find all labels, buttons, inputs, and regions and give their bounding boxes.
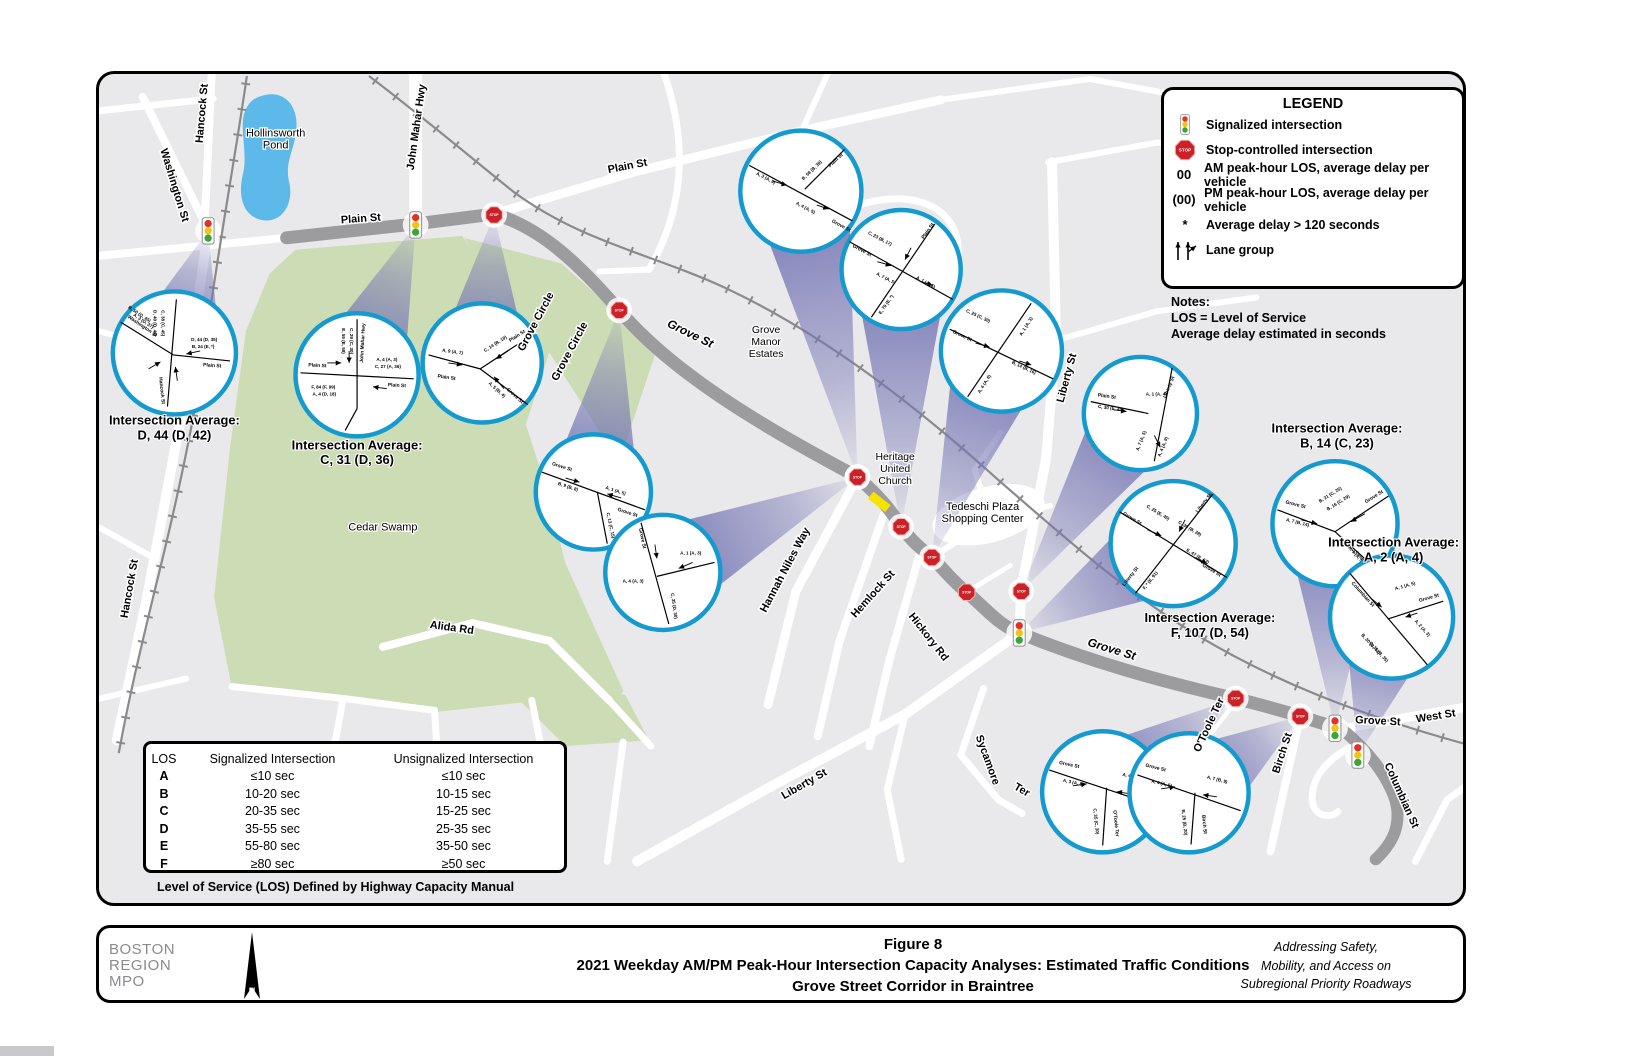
los-letter: E [146, 838, 182, 856]
intersection-callout: Plain StPlain StGrove StA, 9 (A, 7)C, 14… [423, 303, 542, 422]
figure-number: Figure 8 [577, 934, 1250, 955]
intersection-callout: Grove StLiberty StLiberty StGrove StC, 2… [1111, 481, 1236, 606]
svg-text:STOP: STOP [962, 590, 972, 594]
north-arrow-icon: N [237, 931, 267, 1003]
los-threshold: 55-80 sec [182, 838, 363, 856]
stop-sign-icon: STOP [1292, 708, 1309, 725]
signal-icon [1164, 112, 1206, 137]
svg-text:B, 24 (E, *): B, 24 (E, *) [192, 344, 215, 349]
figure-title-line1: 2021 Weekday AM/PM Peak-Hour Intersectio… [577, 955, 1250, 976]
svg-text:A, 4 (A, 3): A, 4 (A, 3) [376, 357, 397, 362]
legend-title: LEGEND [1164, 96, 1462, 112]
figure-title-line2: Grove Street Corridor in Braintree [577, 976, 1250, 997]
corner-chip [0, 1046, 54, 1056]
legend-row-label: PM peak-hour LOS, average delay per vehi… [1204, 186, 1462, 214]
los-threshold: 10-20 sec [182, 785, 363, 803]
svg-text:STOP: STOP [1179, 147, 1191, 152]
svg-text:D, 44 (D, 35): D, 44 (D, 35) [191, 337, 218, 342]
traffic-signal-icon [410, 212, 422, 238]
los-footnote: Level of Service (LOS) Defined by Highwa… [157, 880, 514, 894]
legend-row: (00)PM peak-hour LOS, average delay per … [1164, 187, 1462, 212]
los-threshold: 35-55 sec [182, 820, 363, 838]
figure-page: Washington StPlain StHancock StD, 44 (D,… [0, 0, 1632, 1056]
map-label: Hancock St [119, 558, 141, 619]
stop-sign-icon: STOP [893, 518, 910, 535]
legend-box: LEGEND Signalized intersectionSTOPStop-c… [1161, 87, 1465, 289]
map-label: John Mahar Hwy [405, 83, 429, 170]
svg-text:STOP: STOP [490, 213, 500, 217]
svg-text:STOP: STOP [927, 556, 937, 560]
svg-text:STOP: STOP [1231, 697, 1241, 701]
intersection-callout: Columbian StGrove StA, 1 (A, 5)A, 2 (A, … [1330, 556, 1453, 679]
intersection-average-caption: Intersection Average:D, 44 (D, 42) [109, 412, 240, 442]
legend-row-label: Lane group [1206, 243, 1274, 257]
intersection-average-caption: Intersection Average:F, 107 (D, 54) [1144, 610, 1275, 640]
map-label: West St [1415, 707, 1457, 725]
svg-text:A, 1 (A, 4): A, 1 (A, 4) [1146, 392, 1167, 397]
north-arrow-label: N [249, 986, 256, 996]
stop-sign-icon: STOP [1164, 138, 1206, 162]
map-label: GroveManorEstates [749, 325, 784, 360]
los-letter: A [146, 768, 182, 786]
stop-sign-icon: STOP [849, 469, 866, 486]
los-row: C20-35 sec15-25 sec [146, 803, 564, 821]
svg-text:Plain St: Plain St [388, 382, 407, 389]
intersection-callout: Grove StBirch StA, 4 (A, 5)A, 7 (B, 9)B,… [1129, 733, 1248, 852]
legend-row-label: Signalized intersection [1206, 118, 1342, 132]
footer-panel: BOSTON REGION MPO N Figure 8 2021 Weekda… [96, 925, 1466, 1003]
los-table-header: LOSSignalized IntersectionUnsignalized I… [146, 750, 564, 768]
notes-block: Notes: LOS = Level of Service Average de… [1171, 294, 1386, 342]
los-threshold: ≥80 sec [182, 855, 363, 873]
svg-text:STOP: STOP [897, 525, 907, 529]
map-label: Cedar Swamp [348, 522, 417, 534]
svg-text:STOP: STOP [1296, 715, 1306, 719]
los-table-box: LOSSignalized IntersectionUnsignalized I… [143, 741, 567, 873]
map-panel: Washington StPlain StHancock StD, 44 (D,… [96, 71, 1466, 906]
stop-sign-icon: STOP [486, 207, 503, 224]
svg-text:F, 84 (F, 99): F, 84 (F, 99) [311, 385, 335, 390]
svg-text:E, 55 (E, 58): E, 55 (E, 58) [341, 328, 346, 354]
intersection-callout: Washington StPlain StHancock StD, 44 (D,… [113, 291, 236, 414]
map-label: HeritageUnitedChurch [876, 452, 916, 487]
legend-rows: Signalized intersectionSTOPStop-controll… [1164, 112, 1462, 262]
map-label: Tedeschi PlazaShopping Center [942, 501, 1024, 525]
los-letter: D [146, 820, 182, 838]
los-threshold: 20-35 sec [182, 803, 363, 821]
notes-heading: Notes: [1171, 294, 1386, 310]
legend-row: 00AM peak-hour LOS, average delay per ve… [1164, 162, 1462, 187]
los-letter: B [146, 785, 182, 803]
legend-row: Signalized intersection [1164, 112, 1462, 137]
los-row: E55-80 sec35-50 sec [146, 838, 564, 856]
los-row: B10-20 sec10-15 sec [146, 785, 564, 803]
los-column-header: Signalized Intersection [182, 750, 363, 768]
los-table: LOSSignalized IntersectionUnsignalized I… [146, 750, 564, 873]
los-threshold: 25-35 sec [363, 820, 564, 838]
stop-sign-icon: STOP [958, 584, 975, 601]
svg-text:A, 1 (A, 3): A, 1 (A, 3) [680, 551, 701, 556]
legend-row-label: Average delay > 120 seconds [1206, 218, 1380, 232]
los-threshold: 15-25 sec [363, 803, 564, 821]
intersection-callout: Grove StA, 1 (A, 3)C, 25 (C, 30)B, 14 (B… [941, 290, 1062, 411]
legend-row: STOPStop-controlled intersection [1164, 137, 1462, 162]
legend-row-label: AM peak-hour LOS, average delay per vehi… [1204, 161, 1462, 189]
pm-los-symbol: (00) [1164, 192, 1204, 207]
svg-text:STOP: STOP [615, 309, 625, 313]
stop-sign-icon: STOP [611, 302, 628, 319]
traffic-signal-icon [202, 218, 214, 244]
legend-row-label: Stop-controlled intersection [1206, 143, 1373, 157]
los-column-header: Unsignalized Intersection [363, 750, 564, 768]
intersection-average-caption: Intersection Average:B, 14 (C, 23) [1272, 420, 1403, 450]
svg-text:A, 4 (A, 3): A, 4 (A, 3) [623, 578, 644, 583]
stop-sign-icon: STOP [1227, 690, 1244, 707]
svg-text:A, 4 (D, 18): A, 4 (D, 18) [313, 392, 337, 397]
map-label: Grove St [1355, 714, 1401, 728]
program-tagline: Addressing Safety, Mobility, and Access … [1201, 938, 1451, 994]
asterisk-symbol: * [1164, 217, 1206, 232]
los-row: F≥80 sec≥50 sec [146, 855, 564, 873]
lane-group-icon [1164, 238, 1206, 262]
intersection-callout: John Mahar HwyPlain StPlain StA, 4 (A, 3… [296, 313, 419, 436]
legend-row: Lane group [1164, 237, 1462, 262]
los-threshold: ≥50 sec [363, 855, 564, 873]
am-los-symbol: 00 [1164, 167, 1204, 182]
svg-text:C, 27 (A, 36): C, 27 (A, 36) [375, 364, 402, 369]
los-row: D35-55 sec25-35 sec [146, 820, 564, 838]
org-logo-text: BOSTON REGION MPO [109, 942, 175, 990]
figure-title-block: Figure 8 2021 Weekday AM/PM Peak-Hour In… [577, 934, 1250, 997]
los-letter: C [146, 803, 182, 821]
legend-row: *Average delay > 120 seconds [1164, 212, 1462, 237]
map-label: Hickory Rd [906, 611, 951, 664]
svg-text:D, 40 (D, 42): D, 40 (D, 42) [153, 310, 158, 337]
traffic-signal-icon [1013, 620, 1025, 646]
traffic-signal-icon [1329, 715, 1341, 741]
traffic-signal-icon [1352, 742, 1364, 768]
los-letter: F [146, 855, 182, 873]
notes-body: LOS = Level of Service Average delay est… [1171, 310, 1386, 342]
intersection-callout: Grove StA, 4 (A, 3)A, 1 (A, 3)C, 35 (D, … [605, 515, 720, 630]
stop-sign-icon: STOP [1013, 583, 1030, 600]
pond [241, 94, 297, 220]
los-row: A≤10 sec≤10 sec [146, 768, 564, 786]
intersection-callout: Plain StGrove StA, 3 (A, 5)B, 58 (B, 39)… [740, 131, 861, 252]
svg-text:C, 38 (C, 45): C, 38 (C, 45) [160, 310, 165, 337]
svg-text:Plain St: Plain St [308, 362, 327, 369]
map-label: Grove St [665, 316, 717, 351]
los-threshold: ≤10 sec [363, 768, 564, 786]
svg-text:C, 29 (C, 30): C, 29 (C, 30) [349, 328, 354, 355]
los-column-header: LOS [146, 750, 182, 768]
map-label: Ter [1012, 781, 1033, 800]
intersection-callout: Plain StLiberty StA, 1 (A, 4)C, 30 (E, 4… [1084, 357, 1197, 470]
los-threshold: ≤10 sec [182, 768, 363, 786]
los-threshold: 35-50 sec [363, 838, 564, 856]
stop-sign-icon: STOP [924, 549, 941, 566]
svg-text:STOP: STOP [1017, 589, 1027, 593]
los-threshold: 10-15 sec [363, 785, 564, 803]
intersection-callout: Grove StPlain StC, 23 (B, 17)A, 7 (A, 5)… [842, 210, 961, 329]
los-table-body: A≤10 sec≤10 secB10-20 sec10-15 secC20-35… [146, 768, 564, 873]
svg-text:STOP: STOP [853, 475, 863, 479]
